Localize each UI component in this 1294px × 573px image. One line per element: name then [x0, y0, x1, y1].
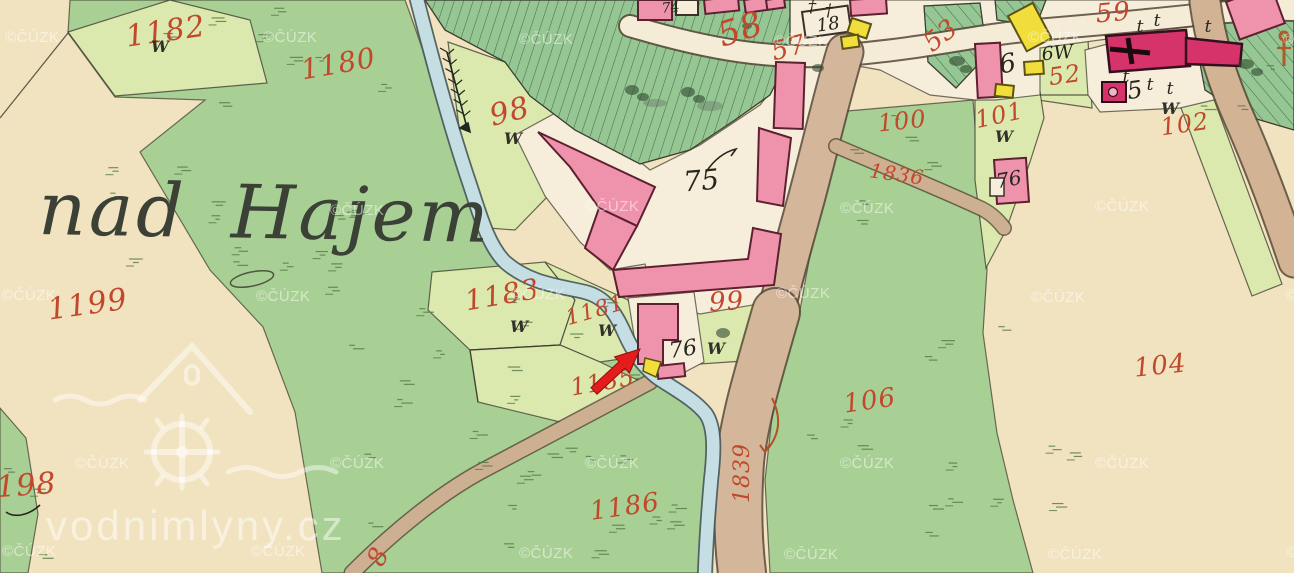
cuzk-watermark: ©ČÚZK [585, 455, 639, 472]
cuzk-watermark: ©ČÚZK [263, 29, 317, 46]
cuzk-watermark: ©ČÚZK [774, 33, 828, 50]
wooden-building [1024, 61, 1044, 75]
tree-mark: t [1154, 11, 1161, 31]
place-name-label: nad Hajem [38, 166, 493, 260]
chapel-door [1109, 88, 1118, 97]
parcel-number: 104 [1132, 348, 1187, 383]
cuzk-watermark: ©ČÚZK [519, 545, 573, 562]
building [766, 0, 785, 10]
cuzk-watermark: ©ČÚZK [585, 198, 639, 215]
cuzk-watermark: ©ČÚZK [1286, 544, 1294, 561]
meadow-mark: W [151, 37, 171, 56]
building [850, 0, 887, 16]
cuzk-watermark: ©ČÚZK [776, 285, 830, 302]
wooden-building [995, 84, 1014, 98]
parcel-number: 99 [708, 286, 745, 318]
church-chancel [1186, 38, 1242, 66]
cuzk-watermark: ©ČÚZK [840, 455, 894, 472]
cuzk-watermark: ©ČÚZK [511, 286, 565, 303]
map-viewport: 1182118098585753595210010110218361199118… [0, 0, 1294, 573]
parcel-number: 198 [0, 466, 58, 505]
parcel-number: 59 [1095, 0, 1133, 30]
wooden-building [841, 35, 860, 49]
cuzk-watermark: ©ČÚZK [1095, 455, 1149, 472]
tree-mark: t [1147, 75, 1154, 95]
house-number: 76 [667, 335, 698, 364]
meadow-mark: W [510, 317, 530, 336]
parcel-number: 100 [876, 105, 927, 138]
meadow-mark: W [598, 321, 618, 340]
tree-mark: t [1137, 17, 1144, 37]
cuzk-watermark: ©ČÚZK [330, 202, 384, 219]
cuzk-watermark: ©ČÚZK [1048, 546, 1102, 563]
building-tall [774, 62, 805, 129]
tree-mark: † [808, 0, 817, 17]
meadow-mark: W [1161, 99, 1181, 118]
cuzk-watermark: ©ČÚZK [1286, 287, 1294, 304]
cadastral-map: 1182118098585753595210010110218361199118… [0, 0, 1294, 573]
house-number: 76 [994, 165, 1024, 193]
tree-mark: † [825, 1, 834, 21]
cuzk-watermark: ©ČÚZK [256, 288, 310, 305]
cuzk-watermark: ©ČÚZK [75, 455, 129, 472]
cuzk-watermark: ©ČÚZK [519, 31, 573, 48]
tree-mark: t [1205, 17, 1212, 37]
cuzk-watermark: ©ČÚZK [2, 287, 56, 304]
mill-annex [657, 363, 685, 379]
house-number: 74 [661, 0, 680, 17]
cuzk-watermark: ©ČÚZK [840, 200, 894, 217]
cuzk-watermark: ©ČÚZK [1283, 31, 1294, 48]
meadow-mark: W [995, 127, 1015, 146]
tree-mark: t [1123, 67, 1130, 87]
meadow-mark: W [707, 339, 727, 358]
cuzk-watermark: ©ČÚZK [5, 29, 59, 46]
house-number: 75 [682, 163, 720, 199]
meadow-mark: W [504, 129, 524, 148]
cuzk-watermark: ©ČÚZK [330, 455, 384, 472]
cuzk-watermark: ©ČÚZK [784, 546, 838, 563]
cuzk-watermark: ©ČÚZK [1095, 198, 1149, 215]
cuzk-watermark: ©ČÚZK [1031, 289, 1085, 306]
tree-mark: t [1167, 79, 1174, 99]
site-watermark-text: vodnimlyny.cz [46, 502, 346, 549]
parcel-number: 1839 [730, 443, 755, 503]
cuzk-watermark: ©ČÚZK [1028, 29, 1082, 46]
